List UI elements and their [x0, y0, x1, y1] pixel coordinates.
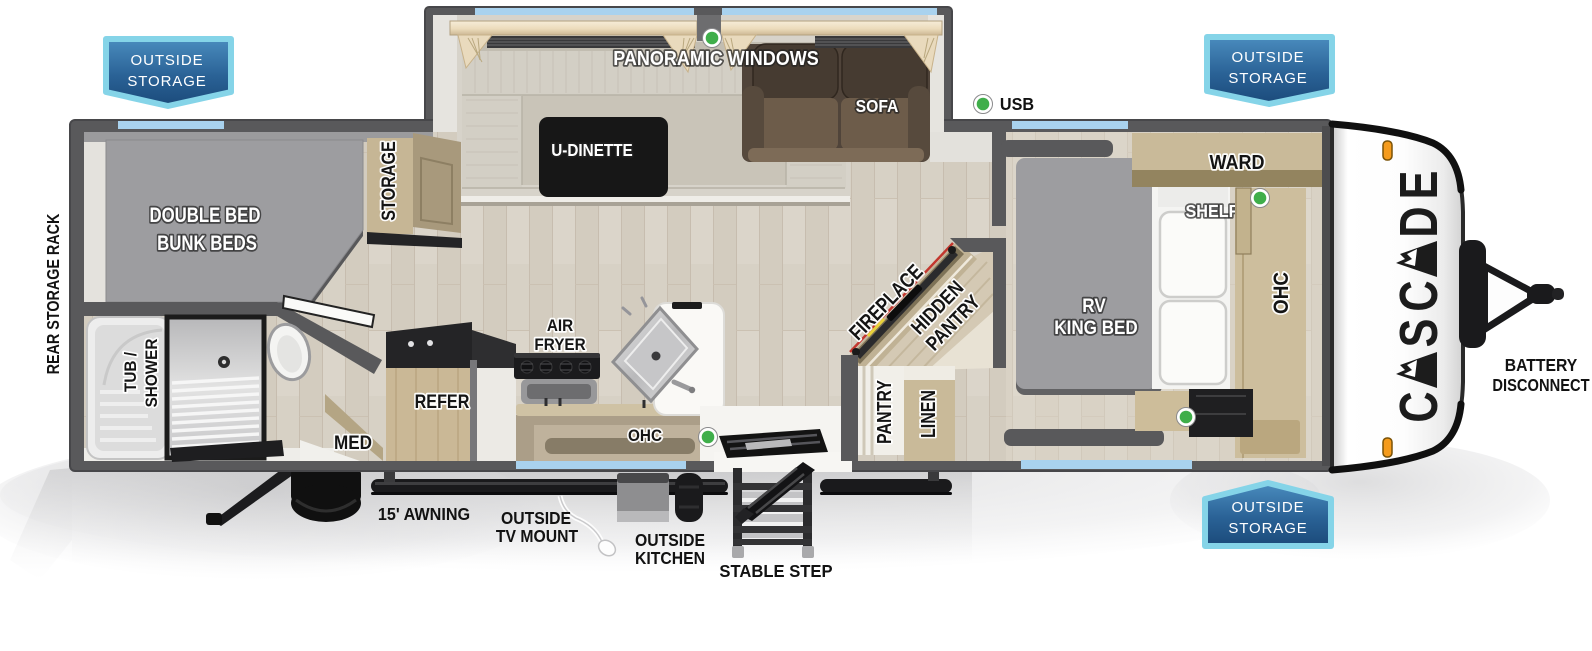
svg-text:BUNK BEDS: BUNK BEDS — [157, 232, 257, 255]
svg-text:KING BED: KING BED — [1054, 317, 1138, 338]
svg-text:SHOWER: SHOWER — [142, 338, 161, 407]
svg-text:OUTSIDE: OUTSIDE — [635, 530, 705, 550]
svg-text:U-DINETTE: U-DINETTE — [551, 140, 633, 160]
svg-text:15' AWNING: 15' AWNING — [378, 504, 470, 524]
svg-text:MED: MED — [334, 432, 372, 453]
svg-text:USB: USB — [1000, 94, 1034, 114]
svg-text:STORAGE: STORAGE — [1228, 70, 1307, 87]
svg-text:BATTERY: BATTERY — [1505, 355, 1578, 375]
svg-text:OHC: OHC — [628, 426, 662, 445]
svg-text:D: D — [1390, 206, 1450, 237]
svg-text:C: C — [1390, 280, 1450, 311]
svg-text:TUB /: TUB / — [121, 352, 140, 392]
svg-text:STORAGE: STORAGE — [1228, 520, 1307, 537]
svg-text:OUTSIDE: OUTSIDE — [1232, 49, 1305, 66]
svg-text:KITCHEN: KITCHEN — [635, 548, 705, 568]
svg-text:TV MOUNT: TV MOUNT — [496, 526, 578, 546]
svg-text:DISCONNECT: DISCONNECT — [1492, 376, 1589, 395]
svg-text:RV: RV — [1082, 295, 1105, 316]
svg-text:REFER: REFER — [415, 391, 470, 413]
svg-text:OUTSIDE: OUTSIDE — [1232, 499, 1305, 516]
svg-text:SOFA: SOFA — [856, 96, 899, 116]
svg-text:PANTRY: PANTRY — [873, 380, 895, 444]
svg-text:DOUBLE BED: DOUBLE BED — [150, 204, 261, 227]
svg-text:STORAGE: STORAGE — [378, 141, 400, 221]
svg-text:PANORAMIC WINDOWS: PANORAMIC WINDOWS — [613, 48, 819, 70]
svg-text:STORAGE: STORAGE — [127, 73, 206, 90]
svg-text:AIR: AIR — [547, 316, 574, 335]
svg-text:C: C — [1390, 391, 1450, 422]
svg-text:OHC: OHC — [1270, 272, 1293, 314]
svg-text:E: E — [1390, 171, 1450, 200]
svg-text:S: S — [1390, 319, 1450, 348]
svg-text:STABLE STEP: STABLE STEP — [719, 562, 832, 581]
svg-text:REAR STORAGE RACK: REAR STORAGE RACK — [45, 213, 64, 374]
svg-text:OUTSIDE: OUTSIDE — [501, 508, 571, 528]
svg-text:LINEN: LINEN — [917, 390, 939, 438]
svg-text:WARD: WARD — [1210, 152, 1265, 174]
svg-text:FRYER: FRYER — [534, 335, 586, 354]
svg-text:SHELF: SHELF — [1185, 201, 1238, 221]
svg-text:OUTSIDE: OUTSIDE — [131, 52, 204, 69]
